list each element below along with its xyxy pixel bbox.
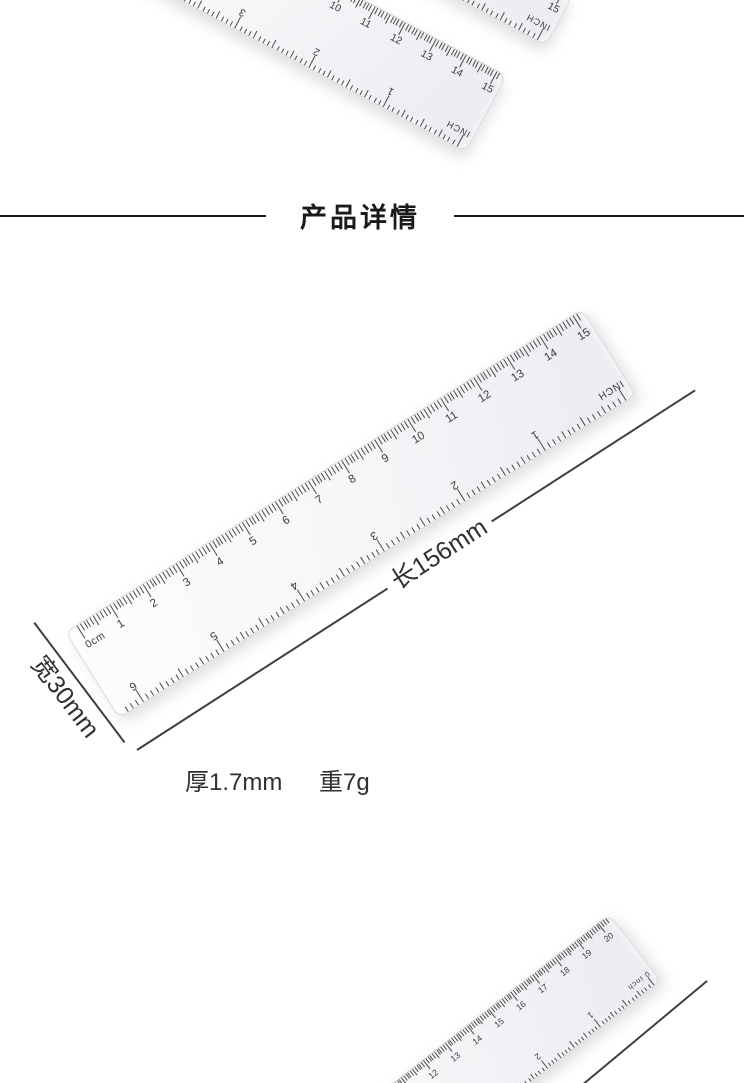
cm-number: 10 <box>327 1 342 16</box>
inch-tick <box>618 1008 622 1012</box>
divider-line-right <box>454 215 744 217</box>
inch-tick <box>612 402 616 408</box>
inch-tick <box>322 70 325 75</box>
inch-tick <box>572 427 576 433</box>
cm-number: 3 <box>182 577 194 590</box>
inch-tick <box>178 668 184 677</box>
inch-tick <box>327 71 331 78</box>
inch-tick <box>486 8 489 13</box>
inch-tick <box>258 36 261 41</box>
inch-tick <box>583 1032 588 1038</box>
inch-tick <box>304 60 307 65</box>
inch-tick <box>276 612 280 618</box>
inch-tick <box>373 97 376 102</box>
inch-tick <box>245 631 249 637</box>
inch-tick <box>215 650 219 656</box>
inch-number: 1 <box>528 427 540 440</box>
ruler-top-left-15cm: 1234567891011121314150cm123456INCH <box>0 0 507 152</box>
inch-tick <box>527 455 531 461</box>
cm-number: 14 <box>449 66 464 81</box>
inch-tick <box>601 1021 605 1025</box>
weight-label: 重7g <box>319 769 370 796</box>
inch-tick <box>530 1074 535 1080</box>
inch-tick <box>472 1 475 6</box>
inch-tick <box>185 668 189 674</box>
inch-tick <box>391 540 395 546</box>
cm-number: 17 <box>536 982 549 995</box>
inch-tick <box>221 16 224 21</box>
cm-number: 4 <box>215 556 227 569</box>
inch-tick <box>541 1067 545 1071</box>
inch-tick <box>279 607 284 615</box>
inch-tick <box>532 452 536 458</box>
inch-number: 2 <box>448 477 460 490</box>
inch-tick <box>424 124 427 129</box>
inch-tick <box>225 643 229 649</box>
inch-tick <box>604 1018 608 1022</box>
cm-tick <box>496 73 500 79</box>
inch-tick <box>281 48 284 53</box>
inch-tick <box>225 18 228 23</box>
inch-tick <box>341 80 344 85</box>
ruler-main-15cm: 1234567891011121314150cm123456INCH <box>65 309 637 719</box>
inch-tick <box>552 439 556 445</box>
inch-tick <box>447 137 450 142</box>
inch-number: 1 <box>386 84 396 96</box>
inch-tick <box>647 984 651 988</box>
inch-tick <box>587 417 591 423</box>
inch-tick <box>285 50 288 55</box>
cm-number: 19 <box>580 948 593 961</box>
inch-label: INCH <box>596 377 625 401</box>
cm-number: 18 <box>558 965 571 978</box>
inch-tick <box>253 31 257 38</box>
inch-number: 6 <box>126 678 138 691</box>
inch-tick <box>406 114 409 119</box>
inch-tick <box>426 518 430 524</box>
inch-number: 2 <box>533 1052 542 1062</box>
inch-tick <box>497 474 501 480</box>
cm-number: 16 <box>515 999 528 1012</box>
cm-tick <box>142 584 151 597</box>
cm-number: 15 <box>576 327 593 344</box>
inch-tick <box>188 0 191 4</box>
inch-tick <box>617 398 621 404</box>
inch-tick <box>410 117 413 122</box>
inch-tick <box>256 624 260 630</box>
inch-tick <box>320 582 325 590</box>
inch-tick <box>197 0 202 9</box>
cm-number: 2 <box>149 598 161 611</box>
cm-tick <box>506 357 515 370</box>
inch-tick <box>420 118 425 127</box>
inch-tick <box>591 1028 595 1032</box>
inch-tick <box>532 33 535 38</box>
inch-tick <box>291 602 295 608</box>
thickness-label: 厚1.7mm <box>185 769 282 796</box>
inch-tick <box>567 430 571 436</box>
inch-tick <box>514 23 517 28</box>
inch-tick <box>495 13 498 18</box>
inch-tick <box>614 1010 618 1014</box>
inch-tick <box>456 499 460 505</box>
cm-number: 13 <box>510 368 527 385</box>
inch-tick <box>210 653 214 659</box>
inch-tick <box>528 1078 532 1082</box>
cm-tick <box>109 605 118 618</box>
inch-tick <box>175 675 179 681</box>
inch-tick <box>608 1015 612 1019</box>
inch-tick <box>359 90 362 95</box>
inch-tick <box>136 690 144 702</box>
inch-tick <box>195 662 199 668</box>
inch-tick <box>440 506 445 514</box>
cm-tick <box>341 460 350 473</box>
inch-tick <box>207 9 210 14</box>
inch-tick <box>527 30 530 35</box>
inch-tick <box>551 1060 555 1064</box>
inch-tick <box>452 139 455 144</box>
inch-tick <box>512 464 516 470</box>
inch-tick <box>313 65 316 70</box>
inch-tick <box>145 693 149 699</box>
inch-tick <box>467 0 470 3</box>
cm-tick <box>308 481 317 494</box>
inch-tick <box>366 555 370 561</box>
cm-tick <box>209 543 218 556</box>
inch-tick <box>296 599 300 605</box>
inch-tick <box>377 539 385 551</box>
inch-tick <box>392 107 395 112</box>
inch-tick <box>346 568 350 574</box>
inch-tick <box>262 38 265 43</box>
inch-tick <box>607 405 611 411</box>
inch-tick <box>258 617 264 626</box>
inch-tick <box>125 706 129 712</box>
inch-tick <box>433 129 436 134</box>
cm-tick <box>407 419 416 432</box>
inch-tick <box>386 543 390 549</box>
inch-tick <box>578 1039 582 1043</box>
inch-tick <box>230 21 233 26</box>
inch-tick <box>248 31 251 36</box>
inch-tick <box>339 567 345 576</box>
inch-tick <box>504 18 507 23</box>
cm-number: 13 <box>418 50 433 65</box>
inch-tick <box>290 51 294 58</box>
inch-tick <box>364 90 368 97</box>
inch-tick <box>429 127 432 132</box>
inch-tick <box>193 1 196 6</box>
inch-tick <box>538 439 546 451</box>
inch-tick <box>346 79 351 88</box>
inch-tick <box>356 562 360 568</box>
cm-tick <box>76 626 85 639</box>
inch-tick <box>472 489 476 495</box>
cm-tick <box>440 398 449 411</box>
inch-tick <box>378 100 381 105</box>
inch-tick <box>351 565 355 571</box>
inch-tick <box>537 449 541 455</box>
inch-tick <box>401 110 405 117</box>
inch-tick <box>481 3 485 10</box>
inch-tick <box>170 678 174 684</box>
inch-tick <box>244 28 247 33</box>
inch-tick <box>355 87 358 92</box>
inch-tick <box>336 574 340 580</box>
inch-tick <box>610 1011 615 1017</box>
inch-tick <box>588 1031 592 1035</box>
section-title: 产品详情 <box>266 196 454 235</box>
cm-tick <box>473 378 482 391</box>
inch-tick <box>628 1000 632 1004</box>
inch-tick <box>419 517 425 526</box>
inch-tick <box>230 640 234 646</box>
inch-tick <box>641 989 645 993</box>
section-divider: 产品详情 <box>0 196 750 235</box>
inch-tick <box>271 615 275 621</box>
cm-zero-label: 0cm <box>84 630 108 650</box>
cm-number: 6 <box>281 515 293 528</box>
inch-tick <box>272 39 277 48</box>
inch-tick <box>520 456 525 464</box>
inch-tick <box>523 28 526 33</box>
inch-tick <box>500 12 505 21</box>
inch-tick <box>443 134 446 139</box>
inch-tick <box>416 524 420 530</box>
inch-number: 3 <box>368 527 380 540</box>
inch-tick <box>561 1052 565 1056</box>
inch-number: 3 <box>238 6 248 18</box>
inch-tick <box>492 477 496 483</box>
inch-tick <box>568 1047 572 1051</box>
cm-number: 13 <box>449 1051 462 1064</box>
cm-number: 12 <box>477 389 494 406</box>
inch-tick <box>564 1049 568 1053</box>
inch-tick <box>431 515 435 521</box>
inch-tick <box>477 486 481 492</box>
inch-tick <box>446 505 450 511</box>
inch-tick <box>216 12 220 19</box>
inch-tick <box>369 95 372 100</box>
inch-tick <box>554 1057 558 1061</box>
inch-tick <box>490 10 493 15</box>
inch-tick <box>636 990 641 996</box>
inch-tick <box>216 640 224 652</box>
inch-tick <box>592 414 596 420</box>
cm-number: 7 <box>314 494 326 507</box>
inch-tick <box>400 531 405 539</box>
cm-number: 12 <box>427 1068 440 1081</box>
inch-tick <box>165 681 169 687</box>
cm-tick <box>576 314 581 321</box>
inch-tick <box>371 552 375 558</box>
cm-number: 11 <box>444 410 460 426</box>
spec-text: 厚1.7mm 重7g <box>185 762 370 797</box>
inch-tick <box>518 23 522 30</box>
inch-tick <box>376 549 380 555</box>
inch-tick <box>184 0 187 2</box>
inch-tick <box>581 1036 585 1040</box>
cm-tick <box>176 564 185 577</box>
inch-tick <box>316 587 320 593</box>
inch-tick <box>574 1041 578 1045</box>
inch-number: 4 <box>287 578 299 591</box>
inch-tick <box>159 682 164 690</box>
inch-tick <box>331 577 335 583</box>
inch-tick <box>644 987 648 991</box>
inch-tick <box>580 417 586 426</box>
inch-tick <box>239 26 242 31</box>
cm-tick <box>338 0 345 3</box>
cm-number: 15 <box>493 1016 506 1029</box>
inch-tick <box>396 109 399 114</box>
inch-tick <box>557 1053 562 1059</box>
cm-number: 9 <box>380 453 392 466</box>
inch-tick <box>299 58 302 63</box>
inch-tick <box>276 46 279 51</box>
cm-number: 15 <box>479 82 494 97</box>
inch-tick <box>438 130 442 137</box>
inch-tick <box>631 997 635 1001</box>
inch-number: 2 <box>312 45 322 57</box>
inch-tick <box>547 442 551 448</box>
cm-number: 15 <box>545 2 560 17</box>
inch-tick <box>396 537 400 543</box>
cm-tick <box>275 502 284 515</box>
inch-tick <box>326 580 330 586</box>
cm-number: 12 <box>388 33 403 48</box>
inch-tick <box>267 41 270 46</box>
cm-number: 10 <box>411 430 428 447</box>
inch-label: 0 inch <box>626 969 651 991</box>
inch-tick <box>336 77 339 82</box>
inch-tick <box>155 687 159 693</box>
cm-tick <box>242 522 251 535</box>
inch-tick <box>311 590 315 596</box>
inch-tick <box>415 119 418 124</box>
inch-tick <box>205 656 209 662</box>
inch-tick <box>387 105 390 110</box>
inch-tick <box>534 1073 538 1077</box>
cm-tick <box>556 0 563 4</box>
inch-tick <box>235 637 239 643</box>
inch-tick <box>251 628 255 634</box>
cm-number: 8 <box>347 474 359 487</box>
inch-tick <box>202 6 205 11</box>
inch-tick <box>150 690 154 696</box>
inch-tick <box>295 55 298 60</box>
inch-tick <box>467 493 471 499</box>
cm-number: 11 <box>358 17 372 31</box>
cm-tick <box>539 336 548 349</box>
divider-line-left <box>0 215 266 217</box>
cm-tick <box>572 316 581 329</box>
inch-tick <box>499 467 505 476</box>
cm-number: 1 <box>116 618 128 631</box>
inch-tick <box>597 411 601 417</box>
inch-tick <box>634 995 638 999</box>
cm-number: 20 <box>602 931 615 944</box>
inch-tick <box>477 3 480 8</box>
inch-tick <box>457 489 465 501</box>
inch-tick <box>577 424 581 430</box>
inch-tick <box>266 618 270 624</box>
inch-tick <box>130 703 134 709</box>
inch-tick <box>350 85 353 90</box>
inch-tick <box>436 511 440 517</box>
inch-number: 5 <box>207 628 219 641</box>
inch-tick <box>487 480 491 486</box>
inch-tick <box>199 657 204 665</box>
inch-number: 1 <box>586 1010 595 1020</box>
cm-tick <box>374 440 383 453</box>
inch-tick <box>318 68 321 73</box>
inch-tick <box>306 593 310 599</box>
cm-number: 14 <box>471 1034 484 1047</box>
inch-tick <box>286 606 290 612</box>
inch-tick <box>239 632 244 640</box>
cm-number: 14 <box>543 348 560 365</box>
cm-number: 5 <box>248 536 260 549</box>
inch-tick <box>360 556 365 564</box>
inch-tick <box>557 436 561 442</box>
inch-tick <box>411 527 415 533</box>
inch-tick <box>621 1005 625 1009</box>
inch-tick <box>190 665 194 671</box>
inch-tick <box>296 589 304 601</box>
inch-tick <box>211 11 214 16</box>
inch-tick <box>594 1026 598 1030</box>
inch-tick <box>561 431 566 439</box>
inch-tick <box>451 502 455 508</box>
inch-tick <box>480 481 485 489</box>
inch-tick <box>517 461 521 467</box>
inch-tick <box>406 530 410 536</box>
inch-tick <box>538 1070 542 1074</box>
product-detail-page: 1234567891011121314150cm123456INCH 12345… <box>0 0 750 1083</box>
ruler-bottom-20cm: 12345678910111213141516171819200cm123456… <box>152 914 662 1083</box>
inch-tick <box>507 468 511 474</box>
inch-tick <box>601 406 606 414</box>
inch-tick <box>135 700 139 706</box>
inch-tick <box>509 20 512 25</box>
inch-tick <box>332 75 335 80</box>
inch-tick <box>548 1062 552 1066</box>
